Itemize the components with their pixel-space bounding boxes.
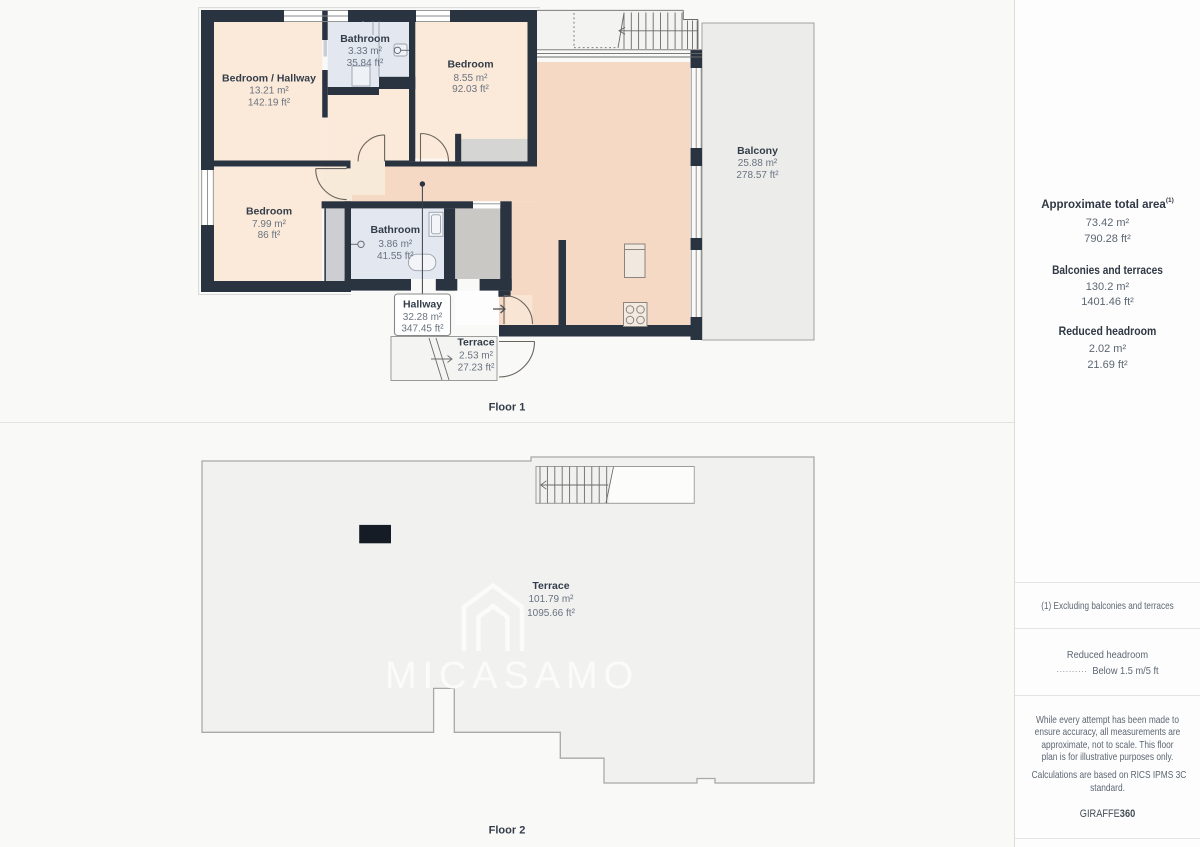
svg-text:101.79 m²: 101.79 m² <box>528 594 574 605</box>
svg-text:Terrace: Terrace <box>457 336 494 348</box>
svg-text:2.53 m²: 2.53 m² <box>459 351 494 362</box>
svg-text:Hallway: Hallway <box>403 299 442 311</box>
svg-text:278.57 ft²: 278.57 ft² <box>736 170 779 181</box>
svg-text:32.28 m²: 32.28 m² <box>403 312 443 323</box>
svg-text:Floor 2: Floor 2 <box>489 825 526 837</box>
svg-text:Bathroom: Bathroom <box>340 33 390 45</box>
svg-text:25.88 m²: 25.88 m² <box>738 158 778 169</box>
svg-text:Bedroom: Bedroom <box>447 59 493 71</box>
svg-text:347.45 ft²: 347.45 ft² <box>401 324 444 335</box>
svg-text:Balcony: Balcony <box>737 145 778 157</box>
svg-text:41.55 ft²: 41.55 ft² <box>377 251 414 262</box>
svg-text:7.99 m²: 7.99 m² <box>252 219 287 230</box>
svg-text:Bedroom / Hallway: Bedroom / Hallway <box>222 73 316 85</box>
svg-text:Terrace: Terrace <box>532 580 569 592</box>
svg-text:1095.66 ft²: 1095.66 ft² <box>527 608 575 619</box>
svg-text:35.84 ft²: 35.84 ft² <box>347 58 384 69</box>
svg-text:3.86 m²: 3.86 m² <box>378 239 413 250</box>
svg-text:13.21 m²: 13.21 m² <box>249 86 289 97</box>
svg-text:8.55 m²: 8.55 m² <box>454 73 489 84</box>
svg-text:86 ft²: 86 ft² <box>258 230 281 241</box>
svg-text:3.33 m²: 3.33 m² <box>348 46 383 57</box>
svg-text:27.23 ft²: 27.23 ft² <box>458 363 495 374</box>
svg-text:92.03 ft²: 92.03 ft² <box>452 84 489 95</box>
svg-text:142.19 ft²: 142.19 ft² <box>248 98 291 109</box>
svg-text:Bathroom: Bathroom <box>371 224 421 236</box>
svg-text:Bedroom: Bedroom <box>246 206 292 218</box>
svg-text:MICASAMO: MICASAMO <box>385 655 639 697</box>
svg-text:Floor 1: Floor 1 <box>489 402 526 414</box>
